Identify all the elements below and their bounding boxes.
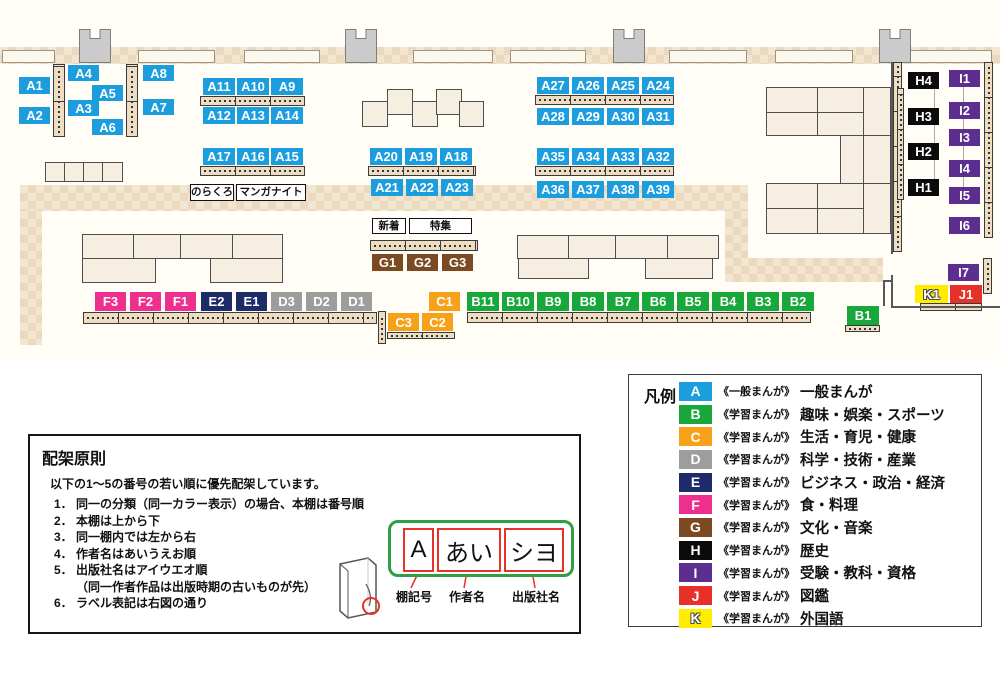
shelf-label-A28: A28 [537,108,569,125]
shelf-label-D2: D2 [306,292,337,311]
shelf-label-A38: A38 [607,181,639,198]
shelf-label-A4: A4 [68,65,99,81]
shelf-label-B3: B3 [747,292,779,311]
reading-table [766,183,818,209]
legend-item-E: E《学習まんが》ビジネス・政治・経済 [679,471,945,494]
principles-item-text: 出版社名はアイウエオ順 [76,562,207,579]
shelf-label-C3: C3 [388,313,419,331]
legend-chip-B: B [679,405,712,424]
shelving-principles-box: 配架原則 以下の1～5の番号の若い順に優先配架しています。 1．同一の分類（同一… [28,434,581,634]
principles-title: 配架原則 [42,445,106,469]
shelf-label-I1: I1 [949,70,980,87]
legend-chip-E: E [679,473,712,492]
legend-item-B: B《学習まんが》趣味・娯楽・スポーツ [679,403,945,426]
bookshelf-strip [200,166,305,176]
shelf-label-A5: A5 [92,85,123,101]
shelf-label-A33: A33 [607,148,639,165]
map-annotation-2: 新着 [372,218,406,234]
bookshelf-strip [200,96,305,106]
principles-item-4: 4．作者名はあいうえお順 [54,546,364,563]
wall-window [775,50,853,63]
bookshelf-strip [984,62,993,238]
legend-category-label: 図鑑 [800,585,829,606]
shelf-label-C1: C1 [429,292,460,311]
shelf-label-I3: I3 [949,129,980,146]
reading-table [180,234,233,259]
legend-chip-C: C [679,427,712,446]
legend-category-label: 受験・教科・資格 [800,562,916,583]
reading-table [45,162,65,182]
pillar [345,29,377,63]
reading-table [817,183,864,209]
shelf-label-B2: B2 [782,292,814,311]
legend-chip-I: I [679,563,712,582]
shelf-label-D1: D1 [341,292,372,311]
reading-table [412,101,438,127]
reading-table [517,235,569,259]
legend-item-A: A《一般まんが》一般まんが [679,380,945,403]
reading-table [863,135,891,184]
legend-category-prefix: 《学習まんが》 [718,610,800,626]
shelf-label-A17: A17 [203,148,235,165]
bookshelf-strip [53,64,65,137]
carpet-area [20,211,42,345]
example-shelf-code: A [403,528,434,572]
legend-category-label: ビジネス・政治・経済 [800,472,945,493]
shelf-label-A13: A13 [237,107,269,124]
principles-list: 1．同一の分類（同一カラー表示）の場合、本棚は番号順2．本棚は上から下3．同一棚… [54,496,364,612]
shelf-label-A8: A8 [143,65,174,81]
reading-table [568,235,616,259]
shelf-label-A21: A21 [371,179,403,196]
reading-table [863,87,891,136]
shelf-label-E1: E1 [236,292,267,311]
legend-item-F: F《学習まんが》食・料理 [679,493,945,516]
legend-category-prefix: 《学習まんが》 [718,429,800,445]
reading-table [362,101,388,127]
legend-category-label: 科学・技術・産業 [800,449,916,470]
shelf-label-H4: H4 [908,72,939,89]
wall-window [138,50,215,63]
legend-box: 凡例 A《一般まんが》一般まんがB《学習まんが》趣味・娯楽・スポーツC《学習まん… [628,374,982,627]
wall-line [883,280,893,282]
shelf-label-A26: A26 [572,77,604,94]
shelf-label-C2: C2 [422,313,453,331]
reading-table [817,208,864,234]
legend-item-G: G《学習まんが》文化・音楽 [679,516,945,539]
legend-chip-G: G [679,518,712,537]
shelf-label-A31: A31 [642,108,674,125]
map-annotation-1: マンガナイト [236,184,306,201]
legend-category-prefix: 《一般まんが》 [718,383,800,399]
reading-table [64,162,84,182]
legend-item-H: H《学習まんが》歴史 [679,539,945,562]
shelf-label-A20: A20 [370,148,402,165]
wall-window [2,50,55,63]
shelf-label-A15: A15 [271,148,303,165]
shelf-label-A12: A12 [203,107,235,124]
reading-table [518,258,589,279]
legend-category-prefix: 《学習まんが》 [718,565,800,581]
legend-item-D: D《学習まんが》科学・技術・産業 [679,448,945,471]
legend-chip-J: J [679,586,712,605]
bookshelf-strip [370,240,478,251]
pillar [879,29,911,63]
bookshelf-strip [83,312,377,324]
shelf-label-A23: A23 [441,179,473,196]
shelf-label-A27: A27 [537,77,569,94]
pointer-label-shelf-code: 棚記号 [396,588,432,605]
principles-item-text: 作者名はあいうえお順 [76,546,196,563]
shelf-label-A19: A19 [405,148,437,165]
wall-window [669,50,747,63]
shelf-label-A36: A36 [537,181,569,198]
bookshelf-strip [378,311,386,344]
wall-window [903,50,992,63]
example-publisher: シヨ [504,528,564,572]
shelf-label-I2: I2 [949,102,980,119]
shelf-label-A9: A9 [271,78,303,95]
shelf-label-F1: F1 [165,292,196,311]
shelf-label-A37: A37 [572,181,604,198]
shelf-label-A32: A32 [642,148,674,165]
reading-table [766,208,818,234]
bookshelf-strip [368,166,476,176]
carpet-area [725,211,748,258]
wall-line [883,280,885,306]
bookshelf-strip [983,258,992,294]
wall-window [413,50,493,63]
shelf-label-B9: B9 [537,292,569,311]
pillar [79,29,111,63]
map-annotation-3: 特集 [409,218,472,234]
bookshelf-strip [387,332,455,339]
shelf-label-K1: K1 [915,285,948,303]
example-author: あい [437,528,501,572]
principles-item-number: 3． [54,529,76,546]
legend-category-label: 外国語 [800,608,844,629]
bookshelf-strip [535,95,674,105]
bookshelf-strip [897,88,904,200]
shelf-label-G3: G3 [442,254,473,271]
shelf-label-I4: I4 [949,160,980,177]
legend-chip-H: H [679,541,712,560]
shelf-label-A25: A25 [607,77,639,94]
shelf-label-D3: D3 [271,292,302,311]
shelf-label-A18: A18 [440,148,472,165]
shelf-label-A35: A35 [537,148,569,165]
principles-item-text: 本棚は上から下 [76,513,160,530]
reading-table [210,258,283,283]
principles-item-6: 6．ラベル表記は右図の通り [54,595,364,612]
principles-item-number: 4． [54,546,76,563]
shelf-label-A7: A7 [143,99,174,115]
reading-table [840,135,864,184]
reading-table [667,235,719,259]
reading-table [82,258,156,283]
shelf-label-B10: B10 [502,292,534,311]
reading-table [102,162,123,182]
bookshelf-strip [126,64,138,137]
carpet-area [725,258,883,282]
reading-table [817,112,864,136]
shelf-label-A30: A30 [607,108,639,125]
pillar [613,29,645,63]
principles-item-text: 同一の分類（同一カラー表示）の場合、本棚は番号順 [76,496,364,513]
shelf-label-A1: A1 [19,77,50,94]
legend-category-prefix: 《学習まんが》 [718,497,800,513]
shelf-label-B7: B7 [607,292,639,311]
shelf-label-H2: H2 [908,143,939,160]
reading-table [817,87,864,113]
shelf-label-A39: A39 [642,181,674,198]
shelf-label-F3: F3 [95,292,126,311]
reading-table [615,235,668,259]
shelf-label-J1: J1 [950,285,982,303]
pointer-label-publisher: 出版社名 [512,588,560,605]
bookshelf-strip [535,166,674,176]
floor-map-page: A1A2A4A5A3A6A8A7A11A10A9A12A13A14A17A16A… [0,0,1000,700]
legend-category-prefix: 《学習まんが》 [718,542,800,558]
legend-chip-F: F [679,495,712,514]
reading-table [863,183,891,234]
shelf-label-A6: A6 [92,119,123,135]
shelf-label-A34: A34 [572,148,604,165]
legend-chip-K: K [679,609,712,628]
legend-category-label: 歴史 [800,540,829,561]
shelf-outline-line [934,80,935,192]
reading-table [459,101,484,127]
principles-item-5: 5．出版社名はアイウエオ順 [54,562,364,579]
principles-intro: 以下の1～5の番号の若い順に優先配架しています。 [50,475,326,492]
bookshelf-strip [845,325,880,332]
wall-line [891,306,1000,308]
shelf-label-B8: B8 [572,292,604,311]
principles-item-number: 6． [54,595,76,612]
principles-item-3: 3．同一棚内では左から右 [54,529,364,546]
shelf-label-E2: E2 [201,292,232,311]
shelf-label-G1: G1 [372,254,403,271]
shelf-label-I6: I6 [949,217,980,234]
legend-item-K: K《学習まんが》外国語 [679,607,945,630]
shelf-label-A11: A11 [203,78,235,95]
shelf-label-A10: A10 [237,78,269,95]
legend-category-prefix: 《学習まんが》 [718,588,800,604]
shelf-label-B11: B11 [467,292,499,311]
principles-item-subtext: （同一作者作品は出版時期の古いものが先） [76,579,364,596]
legend-title: 凡例 [644,383,676,407]
principles-item-text: ラベル表記は右図の通り [76,595,208,612]
legend-category-label: 生活・育児・健康 [800,426,916,447]
legend-category-prefix: 《学習まんが》 [718,474,800,490]
shelf-label-I5: I5 [949,187,980,204]
shelf-label-A29: A29 [572,108,604,125]
legend-category-prefix: 《学習まんが》 [718,519,800,535]
reading-table [645,258,713,279]
shelf-label-A22: A22 [406,179,438,196]
shelf-label-A2: A2 [19,107,50,124]
principles-item-1: 1．同一の分類（同一カラー表示）の場合、本棚は番号順 [54,496,364,513]
legend-category-prefix: 《学習まんが》 [718,451,800,467]
legend-rows: A《一般まんが》一般まんがB《学習まんが》趣味・娯楽・スポーツC《学習まんが》生… [679,380,945,630]
legend-chip-A: A [679,382,712,401]
shelf-label-A3: A3 [68,100,99,116]
legend-category-prefix: 《学習まんが》 [718,406,800,422]
legend-category-label: 食・料理 [800,494,858,515]
principles-item-number: 5． [54,562,76,579]
wall-line [891,62,893,254]
reading-table [232,234,283,259]
shelf-label-B6: B6 [642,292,674,311]
legend-chip-D: D [679,450,712,469]
shelf-label-F2: F2 [130,292,161,311]
shelf-label-I7: I7 [948,264,979,281]
reading-table [766,87,818,113]
reading-table [766,112,818,136]
shelf-label-H1: H1 [908,179,939,196]
shelf-label-A14: A14 [271,107,303,124]
wall-window [510,50,586,63]
legend-category-label: 趣味・娯楽・スポーツ [800,404,945,425]
shelf-label-H3: H3 [908,108,939,125]
floor-map: A1A2A4A5A3A6A8A7A11A10A9A12A13A14A17A16A… [0,0,1000,360]
shelf-label-A16: A16 [237,148,269,165]
legend-category-label: 文化・音楽 [800,517,873,538]
reading-table [83,162,103,182]
reading-table [82,234,134,259]
shelf-label-G2: G2 [407,254,438,271]
pointer-label-author: 作者名 [449,588,485,605]
shelf-label-B4: B4 [712,292,744,311]
label-position-circle [363,598,379,614]
reading-table [387,89,413,115]
bookshelf-strip [467,312,811,323]
legend-item-C: C《学習まんが》生活・育児・健康 [679,425,945,448]
spine-label-example: A あい シヨ [388,520,574,577]
shelf-label-A24: A24 [642,77,674,94]
principles-item-number: 2． [54,513,76,530]
shelf-label-B5: B5 [677,292,709,311]
legend-category-label: 一般まんが [800,381,873,402]
legend-item-J: J《学習まんが》図鑑 [679,584,945,607]
map-annotation-0: のらくろ [190,184,234,201]
principles-item-2: 2．本棚は上から下 [54,513,364,530]
principles-item-text: 同一棚内では左から右 [76,529,196,546]
shelf-label-B1: B1 [847,306,879,325]
wall-window [244,50,320,63]
legend-item-I: I《学習まんが》受験・教科・資格 [679,562,945,585]
reading-table [133,234,181,259]
principles-item-number: 1． [54,496,76,513]
